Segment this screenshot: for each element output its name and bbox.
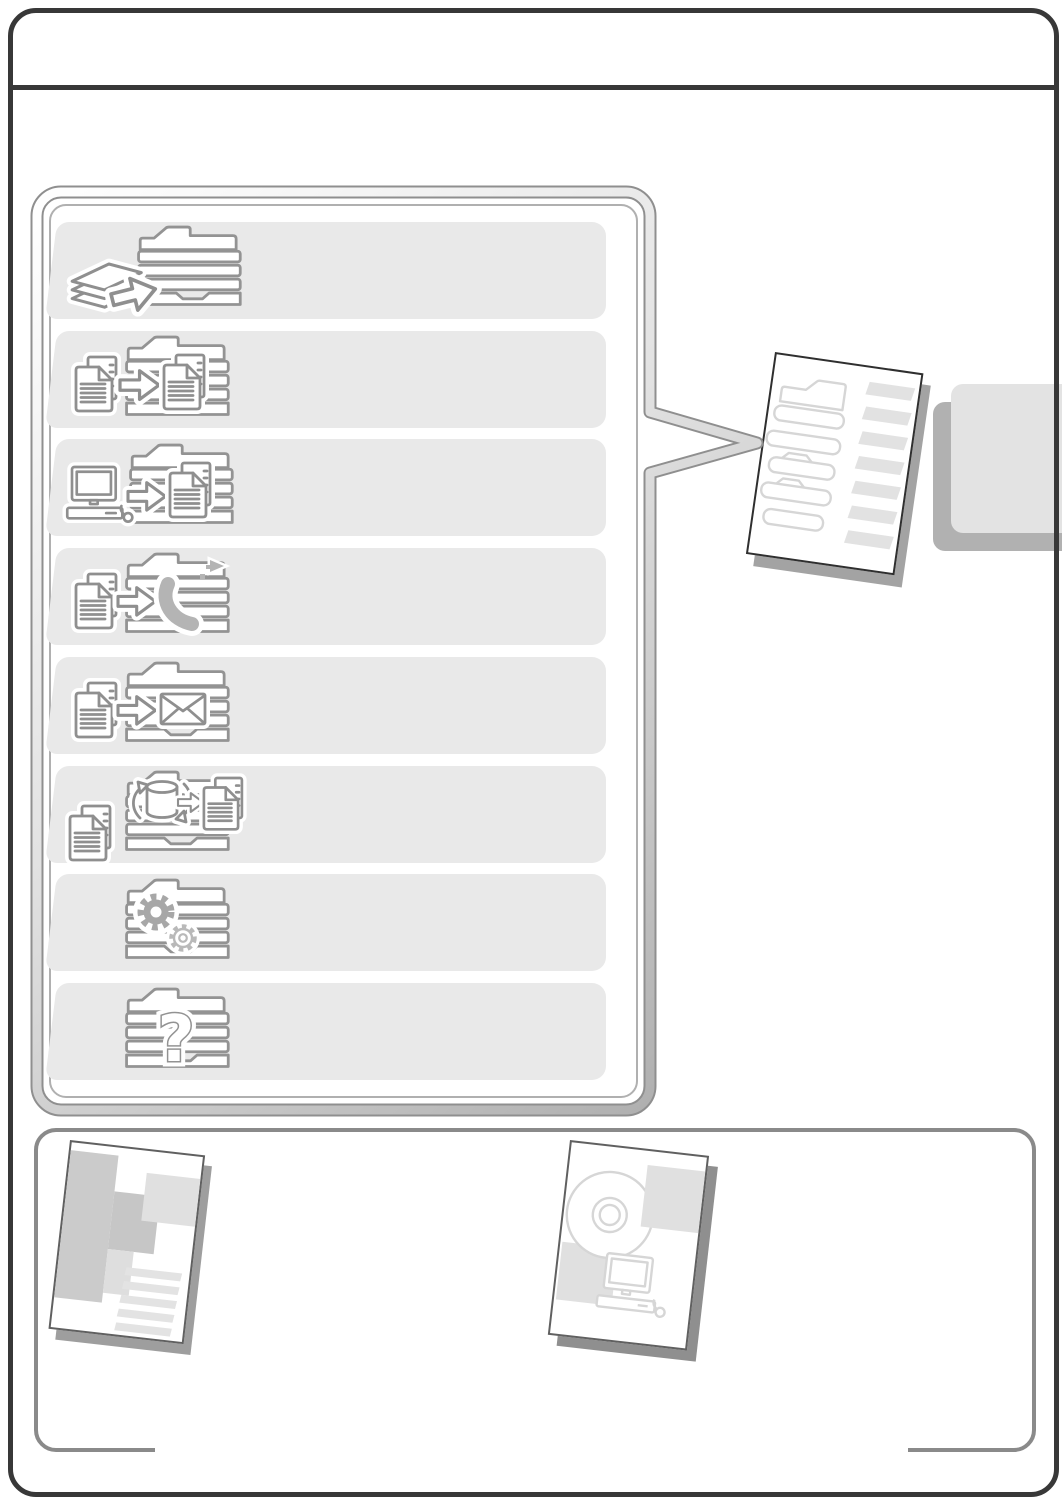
contents-row-list: ? ?	[30, 186, 770, 1121]
gears-icon	[70, 874, 300, 971]
document-to-envelope-icon	[70, 657, 300, 754]
toc-row-printer	[60, 439, 606, 536]
header-divider	[13, 85, 1054, 90]
contents-text-bars	[844, 381, 915, 549]
document-to-telephone-icon	[70, 548, 300, 645]
manual-cover-page: { "document": { "kind": "operation-guide…	[0, 0, 1062, 1500]
copier-with-paper-stack-icon	[70, 222, 300, 319]
question-mark-icon: ? ?	[70, 983, 300, 1080]
page-edge-tab-front	[951, 384, 1062, 533]
question-glyph: ?	[157, 1003, 194, 1077]
toc-row-scanner	[60, 657, 606, 754]
document-database-icon	[70, 766, 300, 863]
document-to-document-icon	[70, 331, 300, 428]
small-gear-icon	[166, 921, 200, 955]
toc-row-before-using-machine	[60, 222, 606, 319]
toc-row-copier	[60, 331, 606, 428]
toc-row-system-settings	[60, 874, 606, 971]
toc-row-fax	[60, 548, 606, 645]
related-guides-panel	[34, 1128, 1036, 1452]
toc-row-troubleshooting: ? ?	[60, 983, 606, 1080]
panel-border-gap	[155, 1444, 908, 1454]
computer-to-document-icon	[70, 439, 300, 536]
toc-row-document-filing	[60, 766, 606, 863]
